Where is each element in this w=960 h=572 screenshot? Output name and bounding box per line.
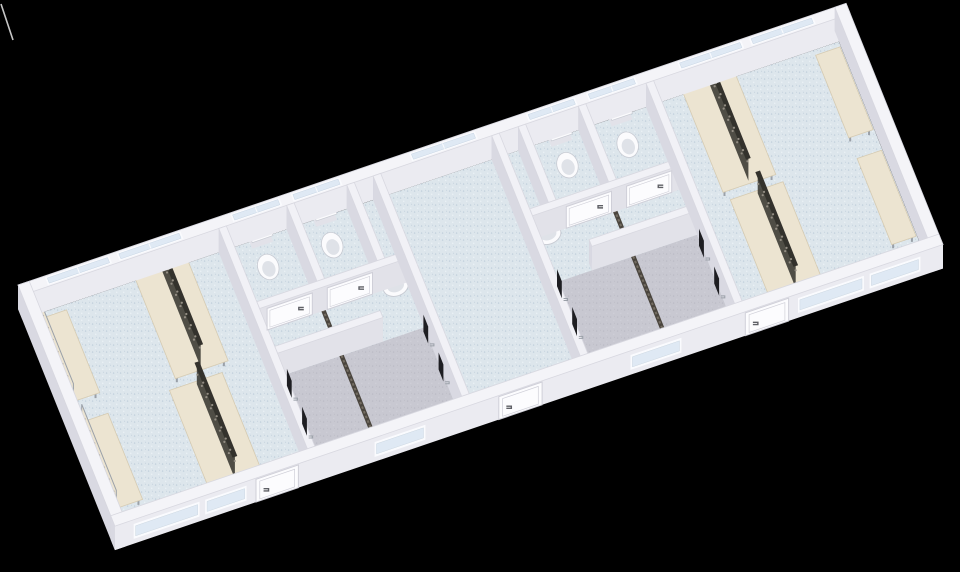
render-artifact: [1, 4, 13, 40]
building-render: [1, 3, 943, 550]
floorplan-3d-view: [0, 0, 960, 572]
floorplan-viewport: 3D rendered floor plan of a modular chan…: [0, 0, 960, 572]
